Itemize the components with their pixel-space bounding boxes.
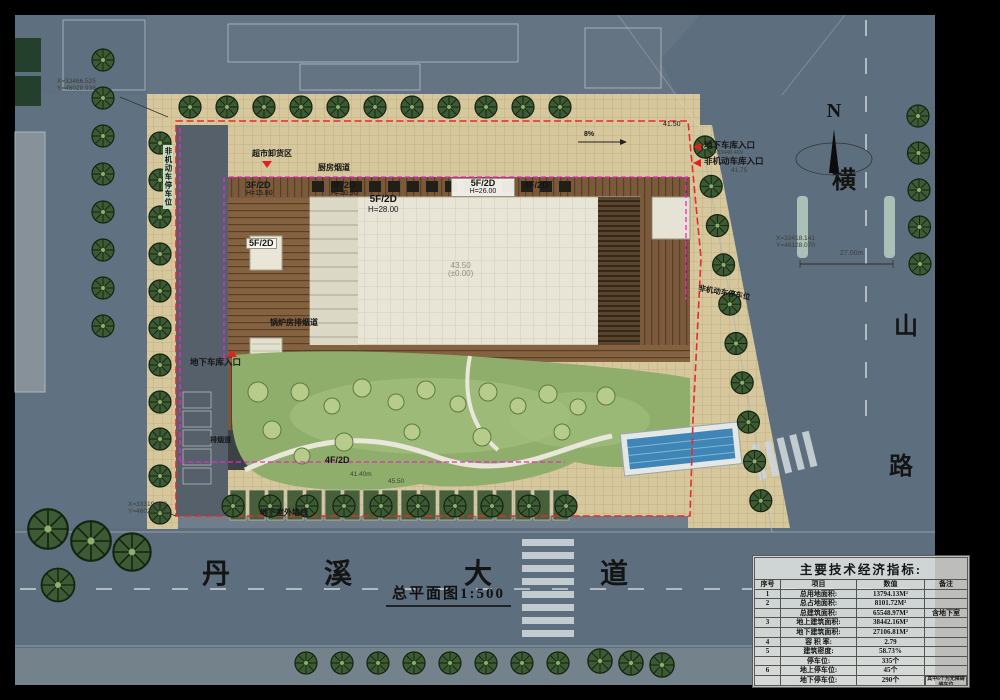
table-cell — [925, 628, 967, 637]
street-tree-icon — [731, 372, 753, 394]
lawn-tree-icon — [597, 387, 615, 405]
street-tree-icon — [438, 96, 460, 118]
garage-north-arrow-icon — [693, 143, 701, 151]
street-tree-icon — [439, 652, 461, 674]
street-tree-icon — [908, 179, 930, 201]
building-label-5f-main: 5F/2D H=28.00 — [368, 195, 398, 214]
garage-entrance-north-label: 地下车库入口 — [704, 141, 755, 150]
street-tree-icon — [92, 315, 114, 337]
road-name-south-char-3: 道 — [600, 552, 628, 592]
street-tree-icon — [333, 495, 355, 517]
north-compass: N — [794, 100, 874, 186]
table-cell: 3 — [755, 618, 781, 627]
street-tree-icon — [401, 96, 423, 118]
street-tree-icon — [737, 411, 759, 433]
south-spot-level-2: 45.50 — [388, 479, 404, 486]
street-tree-icon — [549, 96, 571, 118]
street-tree-icon — [481, 495, 503, 517]
street-tree-icon — [149, 354, 171, 376]
kitchen-flue-label: 厨房烟道 — [318, 164, 350, 172]
lawn-tree-icon — [510, 398, 526, 414]
street-tree-icon — [650, 653, 674, 677]
table-row: 2总占地面积:8101.72M² — [755, 598, 967, 608]
road-name-east-char-2: 路 — [889, 446, 913, 481]
table-cell: 地下建筑面积: — [781, 628, 857, 637]
nonmotor-garage-entrance-label: 非机动车库入口 — [704, 157, 764, 166]
street-tree-icon — [367, 652, 389, 674]
table-cell: 含地下室 — [925, 609, 967, 618]
compass-needle-icon — [794, 123, 874, 181]
tec-table-grid: 序号项目数值备注1总用地面积:13794.13M²2总占地面积:8101.72M… — [755, 579, 967, 685]
street-tree-icon — [512, 96, 534, 118]
table-row: 6地上停车位:45个 — [755, 665, 967, 675]
street-tree-icon — [364, 96, 386, 118]
street-tree-icon — [518, 495, 540, 517]
street-tree-icon — [149, 206, 171, 228]
tech-indicator-table: 主要技术经济指标: 序号项目数值备注1总用地面积:13794.13M²2总占地面… — [752, 555, 970, 688]
exhaust-flue-label: 排烟道 — [210, 437, 231, 444]
street-tree-icon — [370, 495, 392, 517]
building-label-4f-north: 4F/2D H=20.90 — [331, 181, 358, 198]
table-cell — [755, 657, 781, 666]
table-cell: 总建筑面积: — [781, 609, 857, 618]
coordinate-east: X=33418.141Y=46128.070 — [776, 236, 815, 250]
table-row: 停车位:335个 — [755, 656, 967, 666]
garage-entrance-west-label: 地下车库入口 — [190, 358, 241, 367]
street-tree-icon — [403, 652, 425, 674]
table-row: 地下停车位:290个其中6个为无障碍停车位 — [755, 675, 967, 685]
nonmotor-parking-west-label: 非机动车停车位 — [163, 145, 173, 209]
table-cell: 容 积 率: — [781, 638, 857, 647]
street-tree-icon — [149, 243, 171, 265]
garage-west-arrow-icon — [227, 350, 237, 357]
street-tree-icon — [909, 253, 931, 275]
lawn-tree-icon — [291, 383, 309, 401]
street-tree-icon — [295, 652, 317, 674]
boiler-flue-label: 锅炉房排烟道 — [270, 319, 318, 327]
street-tree-icon — [700, 175, 722, 197]
lawn-tree-icon — [335, 433, 353, 451]
street-tree-icon — [475, 652, 497, 674]
street-tree-icon — [750, 490, 772, 512]
table-header-cell: 序号 — [755, 580, 781, 589]
street-tree-icon — [149, 428, 171, 450]
table-cell: 地下停车位: — [781, 676, 857, 685]
table-cell: 58.73% — [857, 647, 925, 656]
supermarket-unloading-label: 超市卸货区 — [252, 150, 292, 158]
table-header-cell: 备注 — [925, 580, 967, 589]
street-tree-icon — [331, 652, 353, 674]
south-spot-level: 41.40m — [350, 472, 372, 479]
table-cell: 4 — [755, 638, 781, 647]
road-name-south-char-0: 丹 — [202, 552, 230, 592]
street-tree-icon — [28, 509, 68, 549]
table-row: 3地上建筑面积:38442.16M² — [755, 617, 967, 627]
street-tree-icon — [113, 533, 150, 570]
building-label-4f-ne: 4F/2D — [524, 181, 549, 190]
table-cell: 13794.13M² — [857, 590, 925, 599]
lawn-tree-icon — [479, 383, 497, 401]
drawing-title: 总平面图1:500 — [386, 582, 511, 607]
street-tree-icon — [511, 652, 533, 674]
table-cell: 6 — [755, 666, 781, 675]
street-tree-icon — [444, 495, 466, 517]
table-cell: 1 — [755, 590, 781, 599]
lawn-tree-icon — [263, 421, 281, 439]
street-tree-icon — [179, 96, 201, 118]
street-tree-icon — [907, 105, 929, 127]
street-tree-icon — [475, 96, 497, 118]
table-cell — [755, 676, 781, 685]
street-tree-icon — [706, 215, 728, 237]
lawn-tree-icon — [353, 379, 371, 397]
table-cell: 8101.72M² — [857, 599, 925, 608]
street-tree-icon — [149, 280, 171, 302]
table-cell: 地上停车位: — [781, 666, 857, 675]
lawn-tree-icon — [473, 428, 491, 446]
street-tree-icon — [92, 201, 114, 223]
street-tree-icon — [42, 569, 75, 602]
nonmotor-entry-arrow-icon — [693, 159, 701, 167]
nonmotor-entry-level: 41.75 — [731, 168, 747, 175]
street-tree-icon — [92, 163, 114, 185]
street-tree-icon — [71, 521, 111, 561]
table-row: 序号项目数值备注 — [755, 579, 967, 589]
table-cell: 290个 — [857, 676, 925, 685]
coordinate-nw: X=33466.525Y=46028.938 — [57, 79, 96, 93]
building-label-4f-south: 4F/2D — [325, 456, 350, 465]
street-tree-icon — [547, 652, 569, 674]
building-label-5f-west: 5F/2D — [246, 238, 277, 249]
table-cell: 停车位: — [781, 657, 857, 666]
table-cell — [925, 599, 967, 608]
table-row: 总建筑面积:65548.97M²含地下室 — [755, 608, 967, 618]
lawn-tree-icon — [450, 396, 466, 412]
coordinate-sw: X=33319.418Y=46028.371 — [128, 502, 167, 516]
building-label-5f-chip: 5F/2D H=26.00 — [451, 178, 515, 197]
table-cell: 地上建筑面积: — [781, 618, 857, 627]
table-cell — [925, 647, 967, 656]
street-tree-icon — [619, 651, 643, 675]
street-tree-icon — [92, 239, 114, 261]
street-tree-icon — [407, 495, 429, 517]
table-cell — [925, 590, 967, 599]
lawn-tree-icon — [248, 382, 268, 402]
lawn-tree-icon — [570, 399, 586, 415]
street-tree-icon — [216, 96, 238, 118]
ramp-slope-label: 8% — [584, 131, 594, 138]
street-tree-icon — [713, 254, 735, 276]
road-name-south-char-1: 溪 — [324, 552, 352, 592]
table-row: 1总用地面积:13794.13M² — [755, 589, 967, 599]
street-tree-icon — [253, 96, 275, 118]
table-row: 4容 积 率:2.79 — [755, 637, 967, 647]
street-tree-icon — [92, 125, 114, 147]
table-cell: 2.79 — [857, 638, 925, 647]
table-title: 主要技术经济指标: — [755, 558, 967, 579]
table-cell: 总占地面积: — [781, 599, 857, 608]
lawn-tree-icon — [404, 424, 420, 440]
lawn-tree-icon — [417, 381, 435, 399]
street-tree-icon — [290, 96, 312, 118]
lawn-tree-icon — [324, 398, 340, 414]
road-width-dimension: 27.00m — [840, 250, 863, 257]
table-cell: 5 — [755, 647, 781, 656]
center-elevation: 43.50 (±0.00) — [448, 262, 473, 279]
street-tree-icon — [149, 465, 171, 487]
lawn-tree-icon — [539, 385, 557, 403]
street-tree-icon — [744, 450, 766, 472]
road-name-east-char-1: 山 — [894, 306, 918, 341]
site-plan-page: X=33466.525Y=46028.938 X=33319.418Y=4602… — [0, 0, 1000, 700]
street-tree-icon — [908, 142, 930, 164]
table-row: 地下建筑面积:27106.81M² — [755, 627, 967, 637]
lawn-tree-icon — [388, 394, 404, 410]
table-cell: 65548.97M² — [857, 609, 925, 618]
table-cell: 总用地面积: — [781, 590, 857, 599]
table-header-cell: 项目 — [781, 580, 857, 589]
street-tree-icon — [588, 649, 612, 673]
basement-wall-line-label: 地下室外墙线 — [260, 509, 308, 517]
table-cell: 335个 — [857, 657, 925, 666]
table-cell: 38442.16M² — [857, 618, 925, 627]
table-cell — [925, 618, 967, 627]
ne-spot-level: 41.50 — [663, 121, 681, 128]
street-tree-icon — [149, 391, 171, 413]
table-cell: 建筑密度: — [781, 647, 857, 656]
street-tree-icon — [149, 317, 171, 339]
street-tree-icon — [92, 277, 114, 299]
table-cell — [925, 666, 967, 675]
lawn-tree-icon — [554, 424, 570, 440]
table-cell — [925, 638, 967, 647]
street-tree-icon — [909, 216, 931, 238]
street-tree-icon — [555, 495, 577, 517]
unloading-arrow-icon — [262, 161, 272, 168]
table-cell — [925, 657, 967, 666]
street-tree-icon — [92, 49, 114, 71]
table-cell: 其中6个为无障碍停车位 — [925, 676, 967, 685]
table-header-cell: 数值 — [857, 580, 925, 589]
table-cell: 27106.81M² — [857, 628, 925, 637]
table-cell: 2 — [755, 599, 781, 608]
table-cell — [755, 609, 781, 618]
table-cell: 45个 — [857, 666, 925, 675]
table-cell — [755, 628, 781, 637]
street-tree-icon — [725, 333, 747, 355]
building-label-3f: 3F/2D H=15.80 — [246, 181, 273, 198]
north-label: N — [794, 100, 874, 123]
street-tree-icon — [222, 495, 244, 517]
street-tree-icon — [327, 96, 349, 118]
table-row: 5建筑密度:58.73% — [755, 646, 967, 656]
